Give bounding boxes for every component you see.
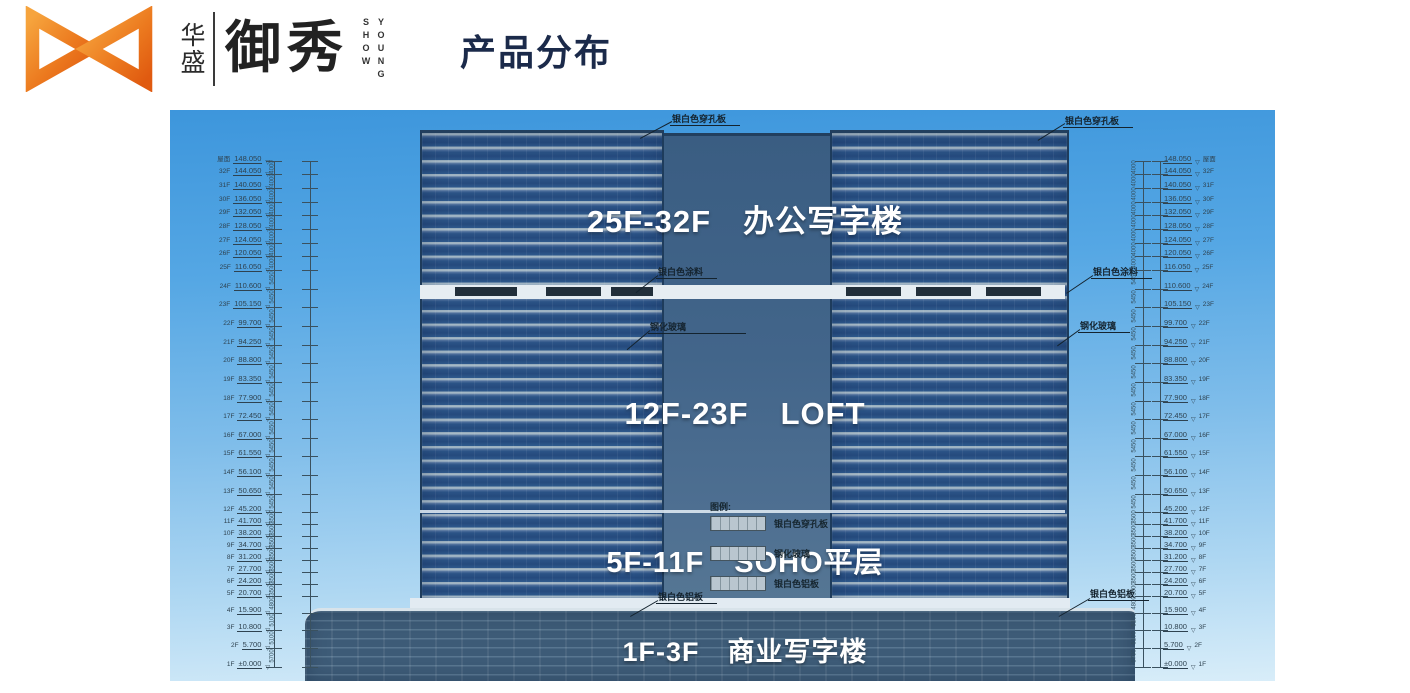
floor-elevation: ±0.000 xyxy=(1163,659,1188,669)
dimension-tick xyxy=(302,572,318,573)
floor-marker-left: 23F105.150▽ xyxy=(184,299,270,309)
elevation-triangle-icon: ▽ xyxy=(265,323,270,330)
floor-marker-right: 27.700▽7F xyxy=(1163,564,1259,574)
annotation-perforated-panel-left: 银白色穿孔板 xyxy=(670,110,740,127)
floor-label: 13F xyxy=(1199,488,1210,495)
elevation-triangle-icon: ▽ xyxy=(265,521,270,528)
elevation-triangle-icon: ▽ xyxy=(1195,226,1200,233)
dimension-value: 4000 xyxy=(270,215,276,228)
floor-label: 8F xyxy=(1199,554,1207,561)
dimension-value: 5450 xyxy=(270,458,276,471)
dimension-value: 4000 xyxy=(270,242,276,255)
legend-swatch-perforated xyxy=(710,516,766,531)
floor-label: 32F xyxy=(219,168,230,175)
floor-label: 20F xyxy=(223,357,234,364)
floor-elevation: 144.050 xyxy=(1163,166,1192,176)
floor-marker-right: 31.200▽8F xyxy=(1163,552,1259,562)
zone-label-loft: 12F-23F LOFT xyxy=(545,388,945,433)
floor-elevation: 5.700 xyxy=(242,640,263,650)
brand-divider xyxy=(213,12,215,86)
floor-marker-left: 22F99.700▽ xyxy=(184,318,270,328)
floor-marker-left: 21F94.250▽ xyxy=(184,337,270,347)
elevation-triangle-icon: ▽ xyxy=(265,569,270,576)
floor-elevation: 110.600 xyxy=(1163,281,1192,291)
dimension-value: 5450 xyxy=(270,328,276,341)
dimension-tick xyxy=(302,243,318,244)
floor-elevation: 41.700 xyxy=(237,516,262,526)
floor-marker-left: 17F72.450▽ xyxy=(184,411,270,421)
floor-elevation: 41.700 xyxy=(1163,516,1188,526)
floor-elevation: 45.200 xyxy=(1163,504,1188,514)
elevation-triangle-icon: ▽ xyxy=(265,159,270,166)
elevation-triangle-icon: ▽ xyxy=(1195,199,1200,206)
elevation-triangle-icon: ▽ xyxy=(1191,593,1196,600)
floor-marker-right: 45.200▽12F xyxy=(1163,504,1259,514)
floor-marker-left: 7F27.700▽ xyxy=(184,564,270,574)
dimension-value: 5450 xyxy=(1132,309,1138,322)
floor-marker-left: 25F116.050▽ xyxy=(184,262,270,272)
floor-elevation: 10.800 xyxy=(237,622,262,632)
annotation-aluminum-left: 银白色铝板 xyxy=(656,587,717,605)
floor-label: 3F xyxy=(227,624,235,631)
floor-label: 6F xyxy=(1199,578,1207,585)
elevation-triangle-icon: ▽ xyxy=(1191,342,1196,349)
elevation-triangle-icon: ▽ xyxy=(1195,159,1200,166)
floor-elevation: 45.200 xyxy=(237,504,262,514)
legend-row: 银白色穿孔板 xyxy=(710,516,828,531)
building-elevation-figure: 图例: 银白色穿孔板 钢化玻璃 银白色铝板 银白色穿孔板 银白色穿孔板 银白色 xyxy=(170,110,1275,681)
annotation-paint-right: 银白色涂料 xyxy=(1091,262,1152,280)
dimension-tick xyxy=(1135,667,1151,668)
floor-marker-left: 5F20.700▽ xyxy=(184,588,270,598)
elevation-triangle-icon: ▽ xyxy=(1191,509,1196,516)
floor-elevation: 38.200 xyxy=(1163,528,1188,538)
floor-label: 17F xyxy=(1199,413,1210,420)
floor-marker-left: 24F110.600▽ xyxy=(184,281,270,291)
louver-block xyxy=(846,287,901,296)
floor-marker-left: 28F128.050▽ xyxy=(184,221,270,231)
floor-elevation: 94.250 xyxy=(1163,337,1188,347)
elevation-triangle-icon: ▽ xyxy=(265,453,270,460)
floor-elevation: 140.050 xyxy=(1163,180,1192,190)
floor-marker-left: 19F83.350▽ xyxy=(184,374,270,384)
floor-elevation: 38.200 xyxy=(237,528,262,538)
floor-label: 10F xyxy=(223,530,234,537)
floor-label: 26F xyxy=(1203,250,1214,257)
floor-label: 22F xyxy=(1199,320,1210,327)
dimension-tick xyxy=(1135,363,1151,364)
floor-label: 19F xyxy=(1199,376,1210,383)
infinity-logo-icon xyxy=(14,6,164,92)
floor-label: 23F xyxy=(1203,301,1214,308)
elevation-triangle-icon: ▽ xyxy=(1191,557,1196,564)
floor-elevation: 140.050 xyxy=(233,180,262,190)
floor-marker-right: 56.100▽14F xyxy=(1163,467,1259,477)
floor-label: 9F xyxy=(227,542,235,549)
annotation-label: 银白色穿孔板 xyxy=(1063,116,1133,128)
dimension-value: 5450 xyxy=(270,346,276,359)
floor-elevation: 56.100 xyxy=(1163,467,1188,477)
dimension-value: 4000 xyxy=(270,201,276,214)
floor-elevation: 120.050 xyxy=(233,248,262,258)
floor-marker-right: 94.250▽21F xyxy=(1163,337,1259,347)
dimension-tick xyxy=(302,438,318,439)
elevation-triangle-icon: ▽ xyxy=(1191,610,1196,617)
elevation-triangle-icon: ▽ xyxy=(265,545,270,552)
elevation-triangle-icon: ▽ xyxy=(265,171,270,178)
floor-elevation: 116.050 xyxy=(1163,262,1192,272)
legend-label: 钢化玻璃 xyxy=(774,547,810,560)
elevation-triangle-icon: ▽ xyxy=(1191,521,1196,528)
floor-label: 5F xyxy=(1199,590,1207,597)
floor-label: 31F xyxy=(219,182,230,189)
floor-elevation: 61.550 xyxy=(1163,448,1188,458)
floor-label: 29F xyxy=(219,209,230,216)
dimension-value: 5700 xyxy=(1132,650,1138,663)
legend-title: 图例: xyxy=(710,500,828,513)
floor-elevation: 31.200 xyxy=(237,552,262,562)
floor-elevation: 24.200 xyxy=(1163,576,1188,586)
dimension-value: 5100 xyxy=(1132,614,1138,627)
floor-label: 10F xyxy=(1199,530,1210,537)
floor-marker-left: 14F56.100▽ xyxy=(184,467,270,477)
dimension-tick xyxy=(302,202,318,203)
floor-label: 11F xyxy=(224,518,235,525)
dimension-tick xyxy=(302,326,318,327)
floor-elevation: 20.700 xyxy=(237,588,262,598)
floor-label: 15F xyxy=(1199,450,1210,457)
floor-elevation: ±0.000 xyxy=(237,659,262,669)
floor-marker-left: 12F45.200▽ xyxy=(184,504,270,514)
floor-elevation: 15.900 xyxy=(237,605,262,615)
floor-elevation: 124.050 xyxy=(233,235,262,245)
floor-marker-right: 20.700▽5F xyxy=(1163,588,1259,598)
floor-label: 15F xyxy=(223,450,234,457)
floor-label: 30F xyxy=(219,196,230,203)
floor-elevation: 99.700 xyxy=(1163,318,1188,328)
floor-label: 28F xyxy=(1203,223,1214,230)
dimension-value: 5450 xyxy=(1132,495,1138,508)
dimension-tick xyxy=(302,456,318,457)
dimension-value: 5100 xyxy=(270,631,276,644)
floor-elevation: 83.350 xyxy=(237,374,262,384)
dimension-value: 5450 xyxy=(270,421,276,434)
dimension-value: 4000 xyxy=(1132,160,1138,173)
floor-elevation: 144.050 xyxy=(233,166,262,176)
elevation-triangle-icon: ▽ xyxy=(265,286,270,293)
elevation-triangle-icon: ▽ xyxy=(265,240,270,247)
floor-marker-right: 38.200▽10F xyxy=(1163,528,1259,538)
floor-elevation: 50.650 xyxy=(1163,486,1188,496)
dimension-value: 4000 xyxy=(1132,228,1138,241)
dimension-value: 5450 xyxy=(1132,421,1138,434)
floor-label: 7F xyxy=(1199,566,1207,573)
dimension-tick xyxy=(302,345,318,346)
dimension-tick xyxy=(302,289,318,290)
floor-marker-right: 24.200▽6F xyxy=(1163,576,1259,586)
floor-label: 24F xyxy=(220,283,231,290)
floor-elevation: 83.350 xyxy=(1163,374,1188,384)
page-title: 产品分布 xyxy=(460,24,612,76)
annotation-perforated-panel-right: 银白色穿孔板 xyxy=(1063,111,1133,129)
dimension-value: 5450 xyxy=(1132,346,1138,359)
floor-elevation: 5.700 xyxy=(1163,640,1184,650)
floor-label: 屋面 xyxy=(217,153,230,163)
elevation-triangle-icon: ▽ xyxy=(265,645,270,652)
elevation-triangle-icon: ▽ xyxy=(1191,664,1196,671)
floor-elevation: 34.700 xyxy=(1163,540,1188,550)
dimension-value: 5450 xyxy=(1132,290,1138,303)
floor-marker-left: 2F5.700▽ xyxy=(184,640,270,650)
dimension-value: 5700 xyxy=(270,650,276,663)
dimension-value: 4000 xyxy=(270,174,276,187)
dimension-value: 4000 xyxy=(1132,201,1138,214)
floor-marker-right: 105.150▽23F xyxy=(1163,299,1259,309)
floor-elevation: 24.200 xyxy=(237,576,262,586)
louver-block xyxy=(611,287,653,296)
elevation-triangle-icon: ▽ xyxy=(1195,304,1200,311)
floor-label: 18F xyxy=(1199,395,1210,402)
dimension-tick xyxy=(302,382,318,383)
floor-marker-left: 27F124.050▽ xyxy=(184,235,270,245)
elevation-triangle-icon: ▽ xyxy=(1191,416,1196,423)
floor-label: 12F xyxy=(223,506,234,513)
elevation-triangle-icon: ▽ xyxy=(265,398,270,405)
floor-label: 14F xyxy=(1199,469,1210,476)
floor-label: 20F xyxy=(1199,357,1210,364)
floor-label: 17F xyxy=(223,413,234,420)
floor-label: 7F xyxy=(227,566,235,573)
floor-elevation: 72.450 xyxy=(237,411,262,421)
floor-elevation: 20.700 xyxy=(1163,588,1188,598)
dimension-value: 5450 xyxy=(1132,384,1138,397)
material-legend: 图例: 银白色穿孔板 钢化玻璃 银白色铝板 xyxy=(710,500,828,606)
floor-marker-left: 8F31.200▽ xyxy=(184,552,270,562)
slide-page: 华盛 御秀 SHOW YOUNG 产品分布 图例: xyxy=(0,0,1410,693)
elevation-triangle-icon: ▽ xyxy=(265,581,270,588)
annotation-glass-right: 钢化玻璃 xyxy=(1078,316,1130,334)
floor-marker-left: 29F132.050▽ xyxy=(184,207,270,217)
elevation-triangle-icon: ▽ xyxy=(1195,212,1200,219)
dimension-value: 4000 xyxy=(1132,187,1138,200)
elevation-triangle-icon: ▽ xyxy=(265,304,270,311)
dimension-value: 5450 xyxy=(1132,439,1138,452)
floor-label: 16F xyxy=(1199,432,1210,439)
floor-marker-right: 67.000▽16F xyxy=(1163,430,1259,440)
floor-elevation: 128.050 xyxy=(233,221,262,231)
floor-elevation: 132.050 xyxy=(1163,207,1192,217)
elevation-triangle-icon: ▽ xyxy=(265,342,270,349)
dimension-value: 5450 xyxy=(270,365,276,378)
elevation-triangle-icon: ▽ xyxy=(1195,267,1200,274)
elevation-triangle-icon: ▽ xyxy=(265,267,270,274)
floor-label: 12F xyxy=(1199,506,1210,513)
floor-marker-left: 18F77.900▽ xyxy=(184,393,270,403)
floor-elevation: 99.700 xyxy=(237,318,262,328)
louver-block xyxy=(916,287,971,296)
dimension-value: 5450 xyxy=(270,384,276,397)
floor-label: 30F xyxy=(1203,196,1214,203)
floor-label: 屋面 xyxy=(1203,153,1216,163)
floor-label: 18F xyxy=(223,395,234,402)
floor-label: 31F xyxy=(1203,182,1214,189)
louver-block xyxy=(455,287,517,296)
dimension-value: 5450 xyxy=(270,402,276,415)
floor-label: 26F xyxy=(219,250,230,257)
floor-label: 16F xyxy=(223,432,234,439)
floor-marker-left: 20F88.800▽ xyxy=(184,355,270,365)
floor-label: 11F xyxy=(1199,518,1210,525)
dimension-tick xyxy=(302,667,318,668)
brand-en-text: SHOW YOUNG xyxy=(361,17,385,82)
dimension-tick xyxy=(302,256,318,257)
floor-marker-right: 132.050▽29F xyxy=(1163,207,1259,217)
floor-marker-right: ±0.000▽1F xyxy=(1163,659,1259,669)
dimension-value: 5450 xyxy=(270,290,276,303)
dimension-value: 4000 xyxy=(1132,215,1138,228)
floor-elevation: 27.700 xyxy=(237,564,262,574)
floor-elevation: 105.150 xyxy=(233,299,262,309)
floor-marker-right: 83.350▽19F xyxy=(1163,374,1259,384)
dimension-value: 5100 xyxy=(270,614,276,627)
dimension-line xyxy=(310,161,311,667)
floor-label: 6F xyxy=(227,578,235,585)
floor-marker-left: 屋面148.050▽ xyxy=(184,153,270,164)
elevation-triangle-icon: ▽ xyxy=(1191,472,1196,479)
dimension-value: 5450 xyxy=(270,477,276,490)
elevation-triangle-icon: ▽ xyxy=(265,664,270,671)
floor-label: 4F xyxy=(227,607,235,614)
floor-marker-left: 11F41.700▽ xyxy=(184,516,270,526)
elevation-triangle-icon: ▽ xyxy=(1191,491,1196,498)
floor-marker-left: 4F15.900▽ xyxy=(184,605,270,615)
dimension-tick xyxy=(302,401,318,402)
floor-elevation: 61.550 xyxy=(237,448,262,458)
dimension-tick xyxy=(302,584,318,585)
floor-label: 1F xyxy=(1199,661,1207,668)
floor-label: 8F xyxy=(227,554,235,561)
dimension-tick xyxy=(302,229,318,230)
dimension-tick xyxy=(302,215,318,216)
floor-marker-left: 32F144.050▽ xyxy=(184,166,270,176)
floor-marker-left: 30F136.050▽ xyxy=(184,194,270,204)
floor-elevation: 50.650 xyxy=(237,486,262,496)
brand-en-col-young: YOUNG xyxy=(376,17,385,82)
dimension-value: 4000 xyxy=(270,228,276,241)
floor-elevation: 120.050 xyxy=(1163,248,1192,258)
dimension-tick xyxy=(1135,307,1151,308)
elevation-triangle-icon: ▽ xyxy=(265,557,270,564)
dimension-value: 5100 xyxy=(1132,631,1138,644)
floor-label: 5F xyxy=(227,590,235,597)
floor-marker-left: 26F120.050▽ xyxy=(184,248,270,258)
floor-label: 2F xyxy=(1194,642,1202,649)
floor-elevation: 67.000 xyxy=(237,430,262,440)
floor-marker-left: 6F24.200▽ xyxy=(184,576,270,586)
floor-marker-right: 72.450▽17F xyxy=(1163,411,1259,421)
elevation-triangle-icon: ▽ xyxy=(1195,286,1200,293)
elevation-triangle-icon: ▽ xyxy=(265,610,270,617)
brand-logo: 华盛 御秀 SHOW YOUNG xyxy=(14,6,385,92)
floor-label: 21F xyxy=(223,339,234,346)
legend-row: 钢化玻璃 xyxy=(710,546,828,561)
dimension-tick xyxy=(302,524,318,525)
floor-elevation: 27.700 xyxy=(1163,564,1188,574)
floor-elevation: 15.900 xyxy=(1163,605,1188,615)
floor-elevation: 88.800 xyxy=(1163,355,1188,365)
floor-marker-right: 110.600▽24F xyxy=(1163,281,1259,291)
floor-elevation: 56.100 xyxy=(237,467,262,477)
floor-marker-right: 15.900▽4F xyxy=(1163,605,1259,615)
floor-label: 13F xyxy=(223,488,234,495)
floor-marker-left: 10F38.200▽ xyxy=(184,528,270,538)
floor-label: 27F xyxy=(1203,237,1214,244)
floor-marker-right: 116.050▽25F xyxy=(1163,262,1259,272)
dimension-tick xyxy=(302,419,318,420)
dimension-tick xyxy=(302,363,318,364)
floor-elevation: 72.450 xyxy=(1163,411,1188,421)
legend-label: 银白色穿孔板 xyxy=(774,517,828,530)
elevation-triangle-icon: ▽ xyxy=(1195,171,1200,178)
floor-label: 4F xyxy=(1199,607,1207,614)
elevation-triangle-icon: ▽ xyxy=(265,533,270,540)
annotation-paint-left: 银白色涂料 xyxy=(656,262,717,280)
elevation-triangle-icon: ▽ xyxy=(265,627,270,634)
floor-marker-right: 99.700▽22F xyxy=(1163,318,1259,328)
elevation-triangle-icon: ▽ xyxy=(1191,581,1196,588)
floor-marker-left: 31F140.050▽ xyxy=(184,180,270,190)
dimension-value: 4000 xyxy=(270,187,276,200)
elevation-triangle-icon: ▽ xyxy=(265,212,270,219)
floor-marker-right: 41.700▽11F xyxy=(1163,516,1259,526)
floor-elevation: 110.600 xyxy=(234,281,263,291)
floor-label: 9F xyxy=(1199,542,1207,549)
floor-label: 14F xyxy=(223,469,234,476)
dimension-value: 3500 xyxy=(270,583,276,596)
floor-label: 29F xyxy=(1203,209,1214,216)
floor-label: 25F xyxy=(1202,264,1213,271)
elevation-triangle-icon: ▽ xyxy=(265,379,270,386)
elevation-triangle-icon: ▽ xyxy=(265,199,270,206)
floor-label: 21F xyxy=(1199,339,1210,346)
dimension-value: 5450 xyxy=(1132,458,1138,471)
dimension-value: 5450 xyxy=(270,439,276,452)
floor-label: 32F xyxy=(1203,168,1214,175)
elevation-triangle-icon: ▽ xyxy=(265,185,270,192)
dimension-tick xyxy=(302,188,318,189)
dimension-tick xyxy=(302,560,318,561)
dimension-value: 5450 xyxy=(1132,402,1138,415)
floor-elevation: 132.050 xyxy=(233,207,262,217)
dimension-value: 5450 xyxy=(1132,365,1138,378)
floor-marker-right: 148.050▽屋面 xyxy=(1163,153,1259,164)
floor-marker-right: 120.050▽26F xyxy=(1163,248,1259,258)
dimension-value: 4000 xyxy=(1132,242,1138,255)
elevation-triangle-icon: ▽ xyxy=(265,509,270,516)
dimension-tick xyxy=(302,512,318,513)
elevation-triangle-icon: ▽ xyxy=(265,226,270,233)
floor-elevation: 10.800 xyxy=(1163,622,1188,632)
annotation-label: 银白色涂料 xyxy=(1091,267,1152,279)
floor-marker-right: 144.050▽32F xyxy=(1163,166,1259,176)
floor-label: 25F xyxy=(220,264,231,271)
zone-label-office: 25F-32F 办公写字楼 xyxy=(545,196,945,241)
dimension-tick xyxy=(302,307,318,308)
dimension-value: 5450 xyxy=(1132,328,1138,341)
elevation-triangle-icon: ▽ xyxy=(1195,253,1200,260)
brand-text: 华盛 御秀 SHOW YOUNG xyxy=(178,12,385,86)
brand-en-col-show: SHOW xyxy=(361,17,370,82)
